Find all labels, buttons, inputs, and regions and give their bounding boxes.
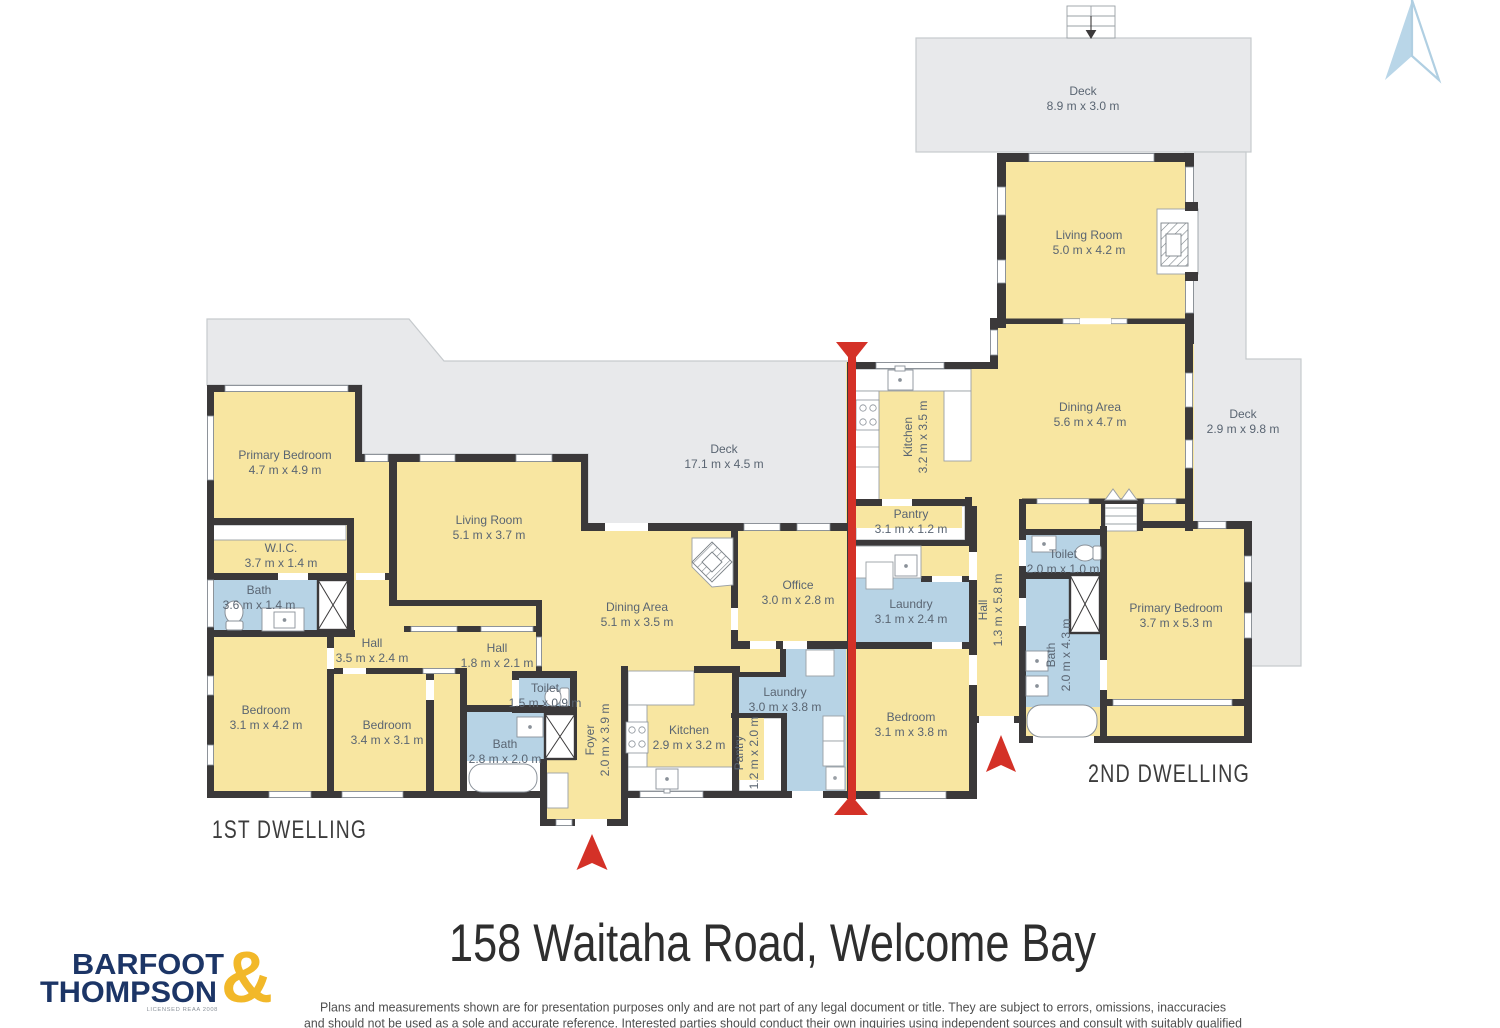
svg-text:THOMPSON: THOMPSON [40,976,217,1009]
svg-text:3.7 m x 1.4 m: 3.7 m x 1.4 m [245,556,318,570]
svg-text:1.3 m x 5.8 m: 1.3 m x 5.8 m [991,574,1005,647]
svg-text:Kitchen: Kitchen [901,417,915,457]
svg-text:5.6 m x 4.7 m: 5.6 m x 4.7 m [1054,415,1127,429]
svg-text:3.4 m x 3.1 m: 3.4 m x 3.1 m [351,733,424,747]
svg-text:Bedroom: Bedroom [242,703,291,717]
svg-text:5.1 m x 3.5 m: 5.1 m x 3.5 m [601,615,674,629]
svg-text:3.2 m x 3.5 m: 3.2 m x 3.5 m [916,401,930,474]
svg-text:Living Room: Living Room [456,513,523,527]
svg-text:Primary Bedroom: Primary Bedroom [238,448,331,462]
svg-text:Bedroom: Bedroom [887,710,936,724]
svg-text:1.2 m x 2.0 m: 1.2 m x 2.0 m [747,717,761,790]
svg-text:3.5 m x 2.4 m: 3.5 m x 2.4 m [336,651,409,665]
svg-text:Hall: Hall [976,600,990,621]
svg-text:Hall: Hall [362,636,383,650]
svg-text:Dining Area: Dining Area [606,600,668,614]
svg-text:Primary Bedroom: Primary Bedroom [1129,601,1222,615]
svg-text:4.7 m x 4.9 m: 4.7 m x 4.9 m [249,463,322,477]
svg-text:Plans and measurements shown a: Plans and measurements shown are for pre… [320,1001,1226,1015]
svg-text:2.8 m x 2.0 m: 2.8 m x 2.0 m [469,752,542,766]
svg-text:W.I.C.: W.I.C. [265,541,298,555]
svg-text:8.9 m x 3.0 m: 8.9 m x 3.0 m [1047,99,1120,113]
svg-text:and should not be used as a so: and should not be used as a sole and acc… [304,1017,1242,1028]
svg-text:Hall: Hall [487,641,508,655]
svg-text:Living Room: Living Room [1056,228,1123,242]
svg-text:Pantry: Pantry [894,507,929,521]
svg-text:158 Waitaha Road, Welcome Bay: 158 Waitaha Road, Welcome Bay [449,914,1096,973]
svg-text:Office: Office [782,578,813,592]
svg-text:Laundry: Laundry [889,597,932,611]
svg-text:2ND DWELLING: 2ND DWELLING [1088,760,1250,788]
svg-text:Deck: Deck [1229,407,1257,421]
svg-text:Toilet: Toilet [531,681,560,695]
svg-text:1.8 m x 2.1 m: 1.8 m x 2.1 m [461,656,534,670]
svg-text:5.0 m x 4.2 m: 5.0 m x 4.2 m [1053,243,1126,257]
svg-text:Kitchen: Kitchen [669,723,709,737]
svg-text:3.1 m x 1.2 m: 3.1 m x 1.2 m [875,522,948,536]
svg-text:Deck: Deck [1069,84,1097,98]
svg-text:Pantry: Pantry [732,736,746,771]
svg-text:3.1 m x 3.8 m: 3.1 m x 3.8 m [875,725,948,739]
svg-text:2.0 m x 3.9 m: 2.0 m x 3.9 m [598,704,612,777]
svg-text:Toilet: Toilet [1049,547,1078,561]
svg-text:1ST DWELLING: 1ST DWELLING [212,816,367,844]
svg-text:5.1 m x 3.7 m: 5.1 m x 3.7 m [453,528,526,542]
svg-text:2.9 m x 9.8 m: 2.9 m x 9.8 m [1207,422,1280,436]
svg-text:2.9 m x 3.2 m: 2.9 m x 3.2 m [653,738,726,752]
svg-text:3.7 m x 5.3 m: 3.7 m x 5.3 m [1140,616,1213,630]
svg-text:Bath: Bath [1044,643,1058,668]
svg-text:LICENSED REAA 2008: LICENSED REAA 2008 [147,1007,218,1013]
svg-text:&: & [221,938,273,1018]
svg-text:3.0 m x 3.8 m: 3.0 m x 3.8 m [749,700,822,714]
svg-text:1.5 m x 0.9 m: 1.5 m x 0.9 m [509,696,582,710]
svg-text:2.0 m x 1.0 m: 2.0 m x 1.0 m [1027,562,1100,576]
svg-text:Bath: Bath [493,737,518,751]
svg-text:17.1 m x 4.5 m: 17.1 m x 4.5 m [684,457,763,471]
svg-text:Deck: Deck [710,442,738,456]
svg-text:3.1 m x 2.4 m: 3.1 m x 2.4 m [875,612,948,626]
svg-text:3.1 m x 4.2 m: 3.1 m x 4.2 m [230,718,303,732]
svg-text:3.6 m x 1.4 m: 3.6 m x 1.4 m [223,598,296,612]
svg-text:Foyer: Foyer [583,725,597,756]
svg-text:Bedroom: Bedroom [363,718,412,732]
svg-text:Laundry: Laundry [763,685,806,699]
svg-text:2.0 m x 4.3 m: 2.0 m x 4.3 m [1059,619,1073,692]
svg-text:Dining Area: Dining Area [1059,400,1121,414]
svg-text:3.0 m x 2.8 m: 3.0 m x 2.8 m [762,593,835,607]
svg-text:Bath: Bath [247,583,272,597]
